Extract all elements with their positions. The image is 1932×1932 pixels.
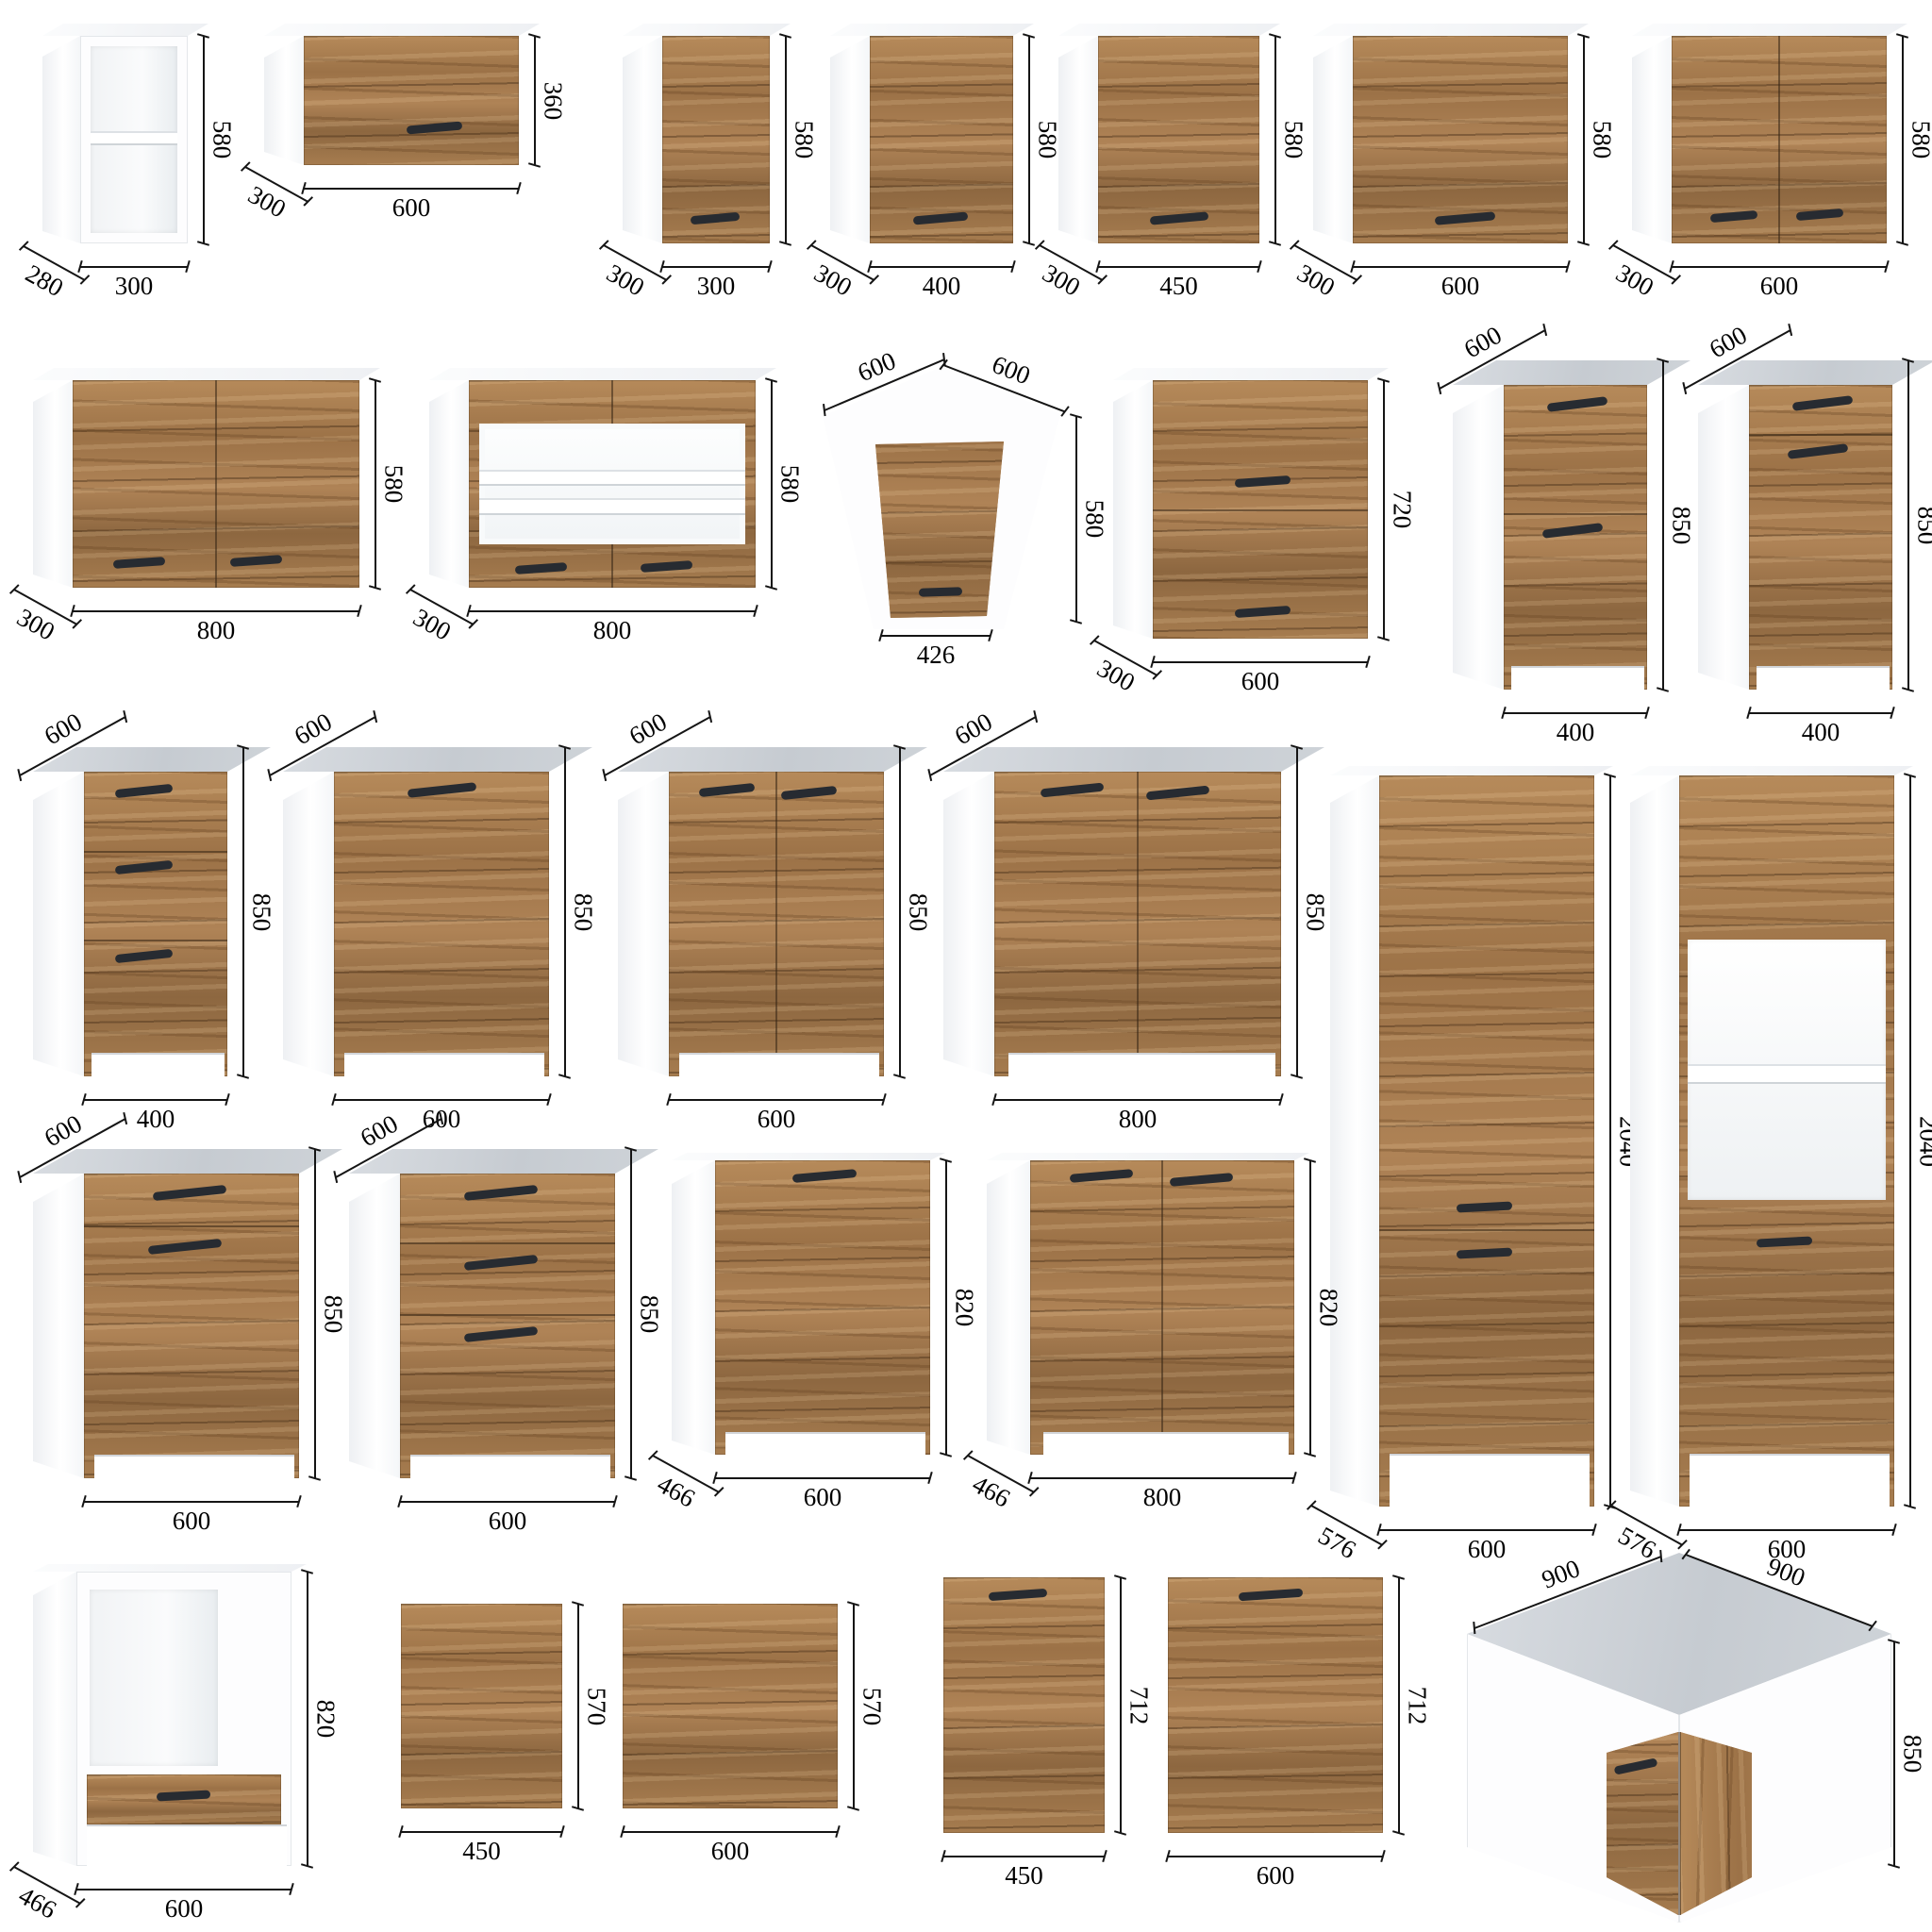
- dim-width-label: 450: [943, 1861, 1105, 1890]
- door-handle: [919, 587, 962, 597]
- dim-width-label: 800: [1030, 1483, 1294, 1512]
- dim-tick: [625, 1475, 637, 1481]
- plinth: [344, 1053, 544, 1076]
- front-face: [870, 36, 1013, 243]
- dim-line: [1662, 360, 1664, 690]
- dim-line: [76, 1889, 291, 1890]
- front-divider: [215, 380, 217, 588]
- top-face: [987, 1153, 1309, 1160]
- dim-line: [853, 1604, 855, 1808]
- door-handle: [1757, 1236, 1813, 1247]
- dim-line: [564, 747, 566, 1076]
- dim-tick: [1304, 1452, 1316, 1457]
- dim-height-label: 580: [208, 121, 237, 159]
- worktop-face: [1698, 360, 1932, 385]
- side-face: [1330, 775, 1379, 1507]
- side-face: [618, 772, 669, 1076]
- dim-line: [84, 1501, 299, 1503]
- dim-height-label: 712: [1403, 1686, 1432, 1724]
- dim-depth: 576: [1311, 1506, 1382, 1545]
- dim-depth: 280: [24, 246, 85, 280]
- plinth: [94, 1455, 294, 1478]
- dim-line: [994, 1099, 1281, 1101]
- side-face: [349, 1174, 400, 1478]
- door-seam: [1678, 1732, 1681, 1915]
- dim-tick: [1904, 1504, 1916, 1509]
- dim-line: [630, 1149, 632, 1478]
- front-divider: [1504, 513, 1647, 515]
- dim-tick: [558, 1074, 571, 1079]
- dim-height-label: 820: [950, 1289, 979, 1327]
- dim-tick: [1657, 687, 1669, 692]
- dim-line: [1028, 36, 1030, 243]
- dim-width-label: 600: [84, 1507, 299, 1536]
- door-handle: [1234, 475, 1291, 488]
- door-handle: [690, 212, 740, 225]
- dim-height-label: 820: [311, 1700, 341, 1739]
- side-face: [1698, 385, 1749, 690]
- dim-line: [1749, 712, 1892, 714]
- side-face: [264, 36, 304, 165]
- dim-line: [1353, 266, 1568, 268]
- dim-depth: 466: [14, 1867, 80, 1904]
- dim-tick: [940, 1452, 952, 1457]
- dim-line: [771, 380, 773, 588]
- dim-height-label: 580: [1033, 121, 1062, 159]
- dim-tick: [237, 1074, 249, 1079]
- dim-line: [375, 380, 376, 588]
- appliance-niche: [1688, 940, 1886, 1199]
- dim-line: [1379, 1529, 1594, 1531]
- front-divider: [1161, 1160, 1163, 1455]
- dim-depth-label: 300: [794, 250, 872, 310]
- plinth: [1757, 666, 1890, 690]
- dim-height-label: 2040: [1914, 1116, 1932, 1167]
- dim-line: [899, 747, 901, 1076]
- door-handle: [1796, 208, 1844, 221]
- dim-width-label: 800: [994, 1105, 1281, 1134]
- dim-tick: [1114, 1830, 1126, 1836]
- door-handle: [641, 560, 692, 573]
- dim-tick: [197, 241, 209, 246]
- dim-line: [334, 1099, 549, 1101]
- dim-line: [1153, 661, 1368, 663]
- side-face: [672, 1160, 715, 1455]
- dim-line: [1075, 416, 1077, 622]
- side-face: [1113, 380, 1153, 639]
- dim-line: [304, 188, 519, 190]
- side-face: [1453, 385, 1504, 690]
- dim-depth-label: 300: [1596, 250, 1674, 310]
- dim-height-label: 720: [1388, 491, 1417, 529]
- dim-line: [577, 1604, 579, 1808]
- door-handle: [699, 782, 756, 796]
- side-face: [429, 380, 469, 588]
- dim-width-label: 600: [1153, 667, 1368, 696]
- front-divider: [1379, 1229, 1594, 1231]
- dim-line: [1909, 775, 1911, 1507]
- dim-width-label: 600: [76, 1894, 291, 1924]
- dim-depth-label: 280: [7, 251, 82, 310]
- door-handle: [1234, 606, 1291, 618]
- dim-tick: [1902, 687, 1914, 692]
- dim-width-label: 600: [715, 1483, 930, 1512]
- top-face: [1058, 24, 1280, 36]
- dim-depth-label: 300: [393, 594, 471, 655]
- front-face: [1030, 1160, 1294, 1455]
- dim-tick: [1377, 636, 1390, 641]
- door-handle: [1149, 212, 1207, 225]
- front-face: [1679, 775, 1894, 1507]
- dim-depth: 300: [1094, 641, 1157, 675]
- dim-depth: 300: [1040, 245, 1102, 280]
- dim-tick: [123, 710, 127, 723]
- dim-tick: [1033, 710, 1038, 723]
- dim-height-label: 850: [1912, 506, 1932, 544]
- dim-tick: [1269, 241, 1281, 246]
- front-divider: [400, 1242, 615, 1244]
- dim-depth-label: 300: [587, 250, 664, 310]
- door-handle: [1040, 782, 1103, 797]
- front-face: [400, 1174, 615, 1478]
- dim-width-label: 400: [870, 272, 1013, 301]
- dim-line: [73, 610, 359, 612]
- door-handle: [1170, 1173, 1234, 1187]
- dim-depth-label: 300: [228, 172, 306, 232]
- front-divider: [84, 851, 227, 853]
- dim-line: [469, 610, 756, 612]
- dim-depth: 300: [1613, 245, 1675, 280]
- front-face: [84, 772, 227, 1076]
- dim-height-label: 820: [1314, 1289, 1343, 1327]
- side-face: [1313, 36, 1353, 243]
- top-face: [429, 368, 776, 380]
- dim-depth-label: 300: [1077, 645, 1155, 706]
- dim-line: [945, 1160, 947, 1455]
- front-face: [1168, 1577, 1383, 1833]
- top-face: [672, 1153, 945, 1160]
- worktop-face: [33, 747, 271, 772]
- dim-height-label: 580: [1907, 121, 1932, 159]
- front-face: [1153, 380, 1368, 639]
- plinth: [87, 1824, 287, 1868]
- dim-height-label: 580: [1279, 121, 1308, 159]
- dim-line: [785, 36, 787, 243]
- dim-line: [1296, 747, 1298, 1076]
- door-handle: [912, 212, 967, 225]
- door-handle: [1457, 1248, 1513, 1259]
- door-handle: [464, 1185, 538, 1201]
- dim-line: [881, 635, 991, 637]
- door-handle: [1434, 211, 1494, 225]
- dim-height-label: 360: [539, 81, 568, 120]
- front-face: [1672, 36, 1887, 243]
- plinth: [1511, 666, 1644, 690]
- dim-tick: [847, 1806, 859, 1811]
- front-face: [943, 1577, 1105, 1833]
- top-face: [42, 24, 208, 36]
- dim-tick: [373, 710, 377, 723]
- dim-line: [1030, 1477, 1294, 1479]
- dim-width-label: 400: [1749, 718, 1892, 747]
- front-face: [994, 772, 1281, 1076]
- dim-depth-label: 300: [1277, 250, 1355, 310]
- side-face: [33, 380, 73, 588]
- drawer-handle: [157, 1790, 211, 1802]
- dim-depth: 300: [245, 167, 308, 202]
- front-face: [623, 1604, 838, 1808]
- worktop-face: [349, 1149, 658, 1174]
- front-divider: [84, 1225, 299, 1227]
- door-handle: [792, 1170, 858, 1184]
- dim-line: [715, 1477, 930, 1479]
- front-divider: [1153, 509, 1368, 511]
- front-divider: [775, 772, 777, 1076]
- top-face: [1632, 24, 1907, 36]
- dim-tick: [1070, 619, 1082, 625]
- door-handle: [1070, 1170, 1134, 1184]
- dim-width-label: 600: [623, 1837, 838, 1866]
- dim-width-label: 600: [669, 1105, 884, 1134]
- dim-width-label: 450: [1098, 272, 1259, 301]
- dim-tick: [369, 585, 381, 591]
- dim-tick: [1542, 324, 1547, 336]
- front-face: [1353, 36, 1568, 243]
- side-face: [830, 36, 870, 243]
- top-face: [1630, 766, 1913, 775]
- side-face: [943, 772, 994, 1076]
- dim-height-label: 850: [635, 1294, 664, 1333]
- door-gap: [611, 544, 613, 588]
- side-face: [987, 1160, 1030, 1455]
- dim-height-label: 850: [1301, 892, 1330, 931]
- top-face: [1313, 24, 1589, 36]
- front-face: [669, 772, 884, 1076]
- dim-line: [1902, 36, 1904, 243]
- plinth: [725, 1432, 925, 1455]
- front-face: [1098, 36, 1259, 243]
- dim-depth-label: 300: [1023, 250, 1100, 310]
- front-divider: [84, 940, 227, 941]
- plinth: [679, 1053, 879, 1076]
- door-gap: [611, 380, 613, 424]
- dim-width-label: 450: [401, 1837, 562, 1866]
- worktop-face: [618, 747, 927, 772]
- dim-height-label: 570: [582, 1687, 611, 1725]
- top-face: [264, 24, 540, 36]
- dim-tick: [1392, 1830, 1405, 1836]
- door-handle: [407, 782, 475, 798]
- side-face: [1632, 36, 1672, 243]
- dim-depth: 466: [653, 1456, 719, 1492]
- dim-line: [242, 747, 244, 1076]
- front-face: [1749, 385, 1892, 690]
- dim-line: [1907, 360, 1909, 690]
- front-face: [662, 36, 770, 243]
- dim-height-label: 580: [379, 465, 408, 504]
- dim-line: [307, 1572, 308, 1866]
- dim-tick: [779, 241, 791, 246]
- front-face: [334, 772, 549, 1076]
- dim-line: [401, 1831, 562, 1833]
- dim-line: [1168, 1856, 1383, 1857]
- dim-width-label: 600: [304, 193, 519, 223]
- dim-tick: [1023, 241, 1035, 246]
- dim-tick: [1788, 324, 1792, 336]
- dim-height-label: 712: [1124, 1686, 1154, 1724]
- door-handle: [1457, 1202, 1513, 1213]
- top-face: [1330, 766, 1613, 775]
- shelf-board: [91, 131, 176, 145]
- dim-height-label: 570: [858, 1687, 887, 1725]
- dim-line: [1309, 1160, 1311, 1455]
- door-handle: [1710, 210, 1758, 223]
- front-face: [84, 1174, 299, 1478]
- dim-line: [662, 266, 770, 268]
- front-face: [1379, 775, 1594, 1507]
- door-handle: [1146, 785, 1209, 800]
- plinth: [92, 1053, 225, 1076]
- front-face: [469, 380, 756, 588]
- front-divider: [1137, 772, 1139, 1076]
- dim-height-label: 850: [319, 1294, 348, 1333]
- plinth: [1008, 1053, 1275, 1076]
- dim-depth: 300: [811, 245, 874, 280]
- dim-width-label: 800: [73, 616, 359, 645]
- front-face: [1504, 385, 1647, 690]
- dim-line: [1274, 36, 1276, 243]
- door-handle: [780, 786, 837, 800]
- door-handle: [1239, 1588, 1304, 1601]
- plinth: [1043, 1432, 1289, 1455]
- dim-tick: [528, 162, 541, 168]
- top-face: [830, 24, 1034, 36]
- worktop-face: [33, 1149, 342, 1174]
- front-face: [76, 1572, 291, 1866]
- dim-line: [870, 266, 1013, 268]
- dim-height-label: 850: [247, 892, 276, 931]
- dim-depth: 300: [14, 590, 76, 625]
- dim-line: [1609, 775, 1611, 1507]
- dim-width-label: 300: [80, 272, 188, 301]
- door-handle: [230, 555, 282, 567]
- dim-tick: [1577, 241, 1590, 246]
- dim-tick: [301, 1863, 313, 1869]
- dim-line: [1672, 266, 1887, 268]
- top-face: [33, 368, 380, 380]
- cabinet-catalog-canvas: 3005802806003603003005803004005803004505…: [0, 0, 1932, 1932]
- side-face: [623, 36, 662, 243]
- top-face: [33, 1564, 307, 1572]
- dim-height-label: 580: [1080, 500, 1109, 539]
- door-handle: [989, 1588, 1047, 1600]
- dim-line: [1893, 1641, 1895, 1866]
- dim-height-label: 580: [790, 121, 819, 159]
- dim-line: [314, 1149, 316, 1478]
- worktop-face: [1453, 360, 1690, 385]
- door-handle: [514, 562, 566, 575]
- dim-width-label: 600: [400, 1507, 615, 1536]
- dim-height-label: 850: [904, 892, 933, 931]
- dim-depth: 466: [968, 1456, 1034, 1492]
- dim-tick: [1291, 1074, 1303, 1079]
- door-handle: [407, 122, 463, 135]
- dim-line: [669, 1099, 884, 1101]
- side-face: [1630, 775, 1679, 1507]
- dim-height-label: 850: [1667, 506, 1696, 544]
- dim-line: [1120, 1577, 1122, 1833]
- dim-line: [1504, 712, 1647, 714]
- plinth: [1390, 1454, 1590, 1507]
- top-face: [623, 24, 791, 36]
- glass-shelf: [479, 470, 746, 486]
- dim-width-label: 600: [1672, 272, 1887, 301]
- dim-height-label: 850: [569, 892, 598, 931]
- dim-width-label: 600: [1168, 1861, 1383, 1890]
- dim-depth: 300: [604, 245, 666, 280]
- dim-line: [1098, 266, 1259, 268]
- dim-width-label: 800: [469, 616, 756, 645]
- dim-line: [1583, 36, 1585, 243]
- dim-width-label: 400: [1504, 718, 1647, 747]
- dim-depth: 300: [1294, 245, 1357, 280]
- dim-line: [943, 1856, 1105, 1857]
- side-face: [33, 1572, 76, 1866]
- dim-tick: [893, 1074, 906, 1079]
- side-face: [33, 1174, 84, 1478]
- dim-line: [80, 266, 188, 268]
- dim-tick: [572, 1806, 584, 1811]
- door-handle: [115, 948, 173, 962]
- side-face: [42, 36, 80, 243]
- door-handle: [1546, 396, 1607, 412]
- glass-shelf: [479, 498, 746, 514]
- side-face: [1058, 36, 1098, 243]
- door-handle: [1788, 443, 1848, 459]
- dim-depth: 300: [410, 590, 473, 625]
- door-handle: [112, 557, 164, 569]
- plinth: [1690, 1454, 1890, 1507]
- front-face: [715, 1160, 930, 1455]
- front-face: [304, 36, 519, 165]
- dim-tick: [1896, 241, 1908, 246]
- dim-line: [1398, 1577, 1400, 1833]
- dim-width-label: 426: [881, 641, 991, 670]
- dim-width-label: 600: [1353, 272, 1568, 301]
- front-divider: [400, 1314, 615, 1316]
- dim-height-label: 850: [1898, 1735, 1927, 1774]
- dim-line: [203, 36, 205, 243]
- dim-width-label: 300: [662, 272, 770, 301]
- front-face: [73, 380, 359, 588]
- oven-drawer-front: [87, 1774, 280, 1824]
- dim-line: [1383, 380, 1385, 639]
- door-handle: [1542, 523, 1603, 539]
- door-handle: [115, 860, 173, 874]
- dim-tick: [308, 1475, 321, 1481]
- dim-tick: [765, 585, 777, 591]
- dim-height-label: 580: [1588, 121, 1617, 159]
- dim-tick: [1888, 1863, 1900, 1869]
- oven-cavity: [90, 1590, 219, 1766]
- front-divider: [1749, 434, 1892, 436]
- door-handle: [115, 784, 173, 798]
- door-handle: [464, 1255, 538, 1271]
- dim-line: [623, 1831, 838, 1833]
- dim-line: [534, 36, 536, 165]
- dim-tick: [708, 710, 712, 723]
- door-handle: [153, 1185, 226, 1201]
